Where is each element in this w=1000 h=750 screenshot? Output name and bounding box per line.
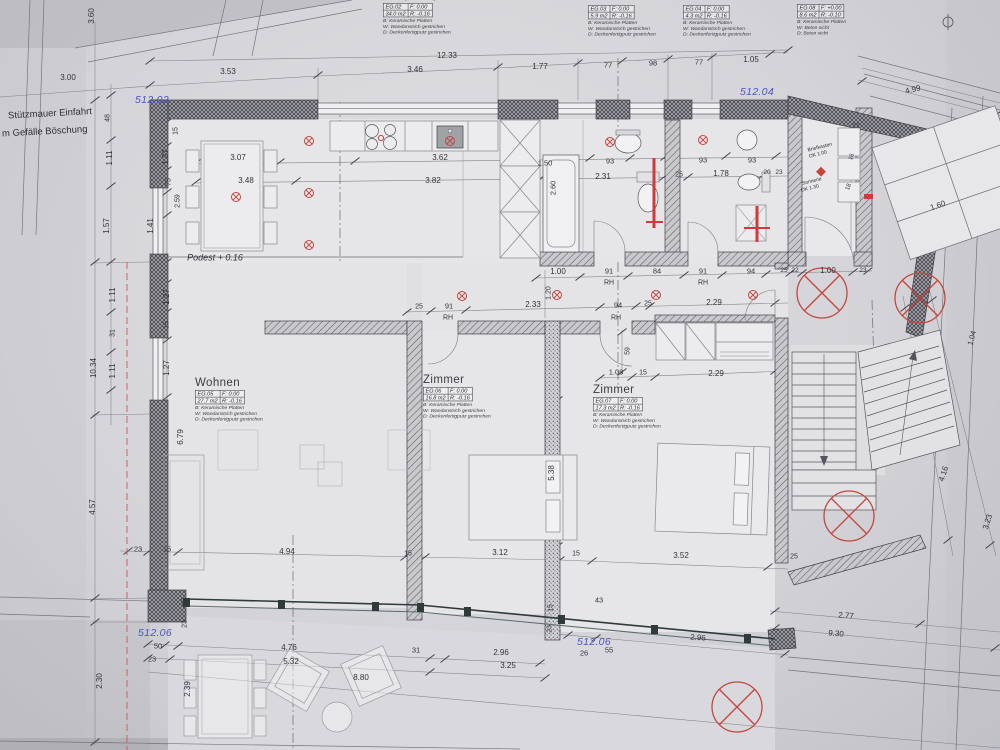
room-data-table: EG.08F: +0.00 8.6 m2R: -0.10 xyxy=(797,4,844,18)
dimension-label: 93 xyxy=(606,157,614,165)
dimension-label: 8.80 xyxy=(353,674,369,682)
dimension-label: 3.12 xyxy=(492,549,508,557)
dimension-label: 1.27 xyxy=(163,289,171,305)
dimension-label: 2.96 xyxy=(690,633,706,642)
dimension-label: 93 xyxy=(748,156,756,164)
dimension-label: 1.05 xyxy=(743,56,759,64)
info-box-eg08: EG.08F: +0.00 8.6 m2R: -0.10 B: Keramisc… xyxy=(797,3,876,55)
dimension-label: 15 xyxy=(548,604,555,612)
dimension-label: 3.48 xyxy=(238,177,254,185)
dimension-label: 2.59 xyxy=(175,194,182,208)
dimension-label: 15 xyxy=(404,551,412,558)
dimension-label: 5.38 xyxy=(548,465,556,481)
dimension-label: 77 xyxy=(604,61,612,69)
dimension-label: 25 xyxy=(415,304,423,311)
dimension-label: 3.52 xyxy=(673,552,689,560)
dimension-label: 91 xyxy=(699,267,707,275)
dimension-label: 1.57 xyxy=(103,218,111,234)
dimension-label: 77 xyxy=(695,58,703,66)
dimension-label: 4.94 xyxy=(279,548,295,556)
dimension-label: 25 xyxy=(675,172,683,179)
room-label-wohnen: Wohnen EG.05F: 0.00 27.7 m2R: -0.16 B: K… xyxy=(195,377,304,441)
room-title-kueche: Küche, Essen, Flur xyxy=(381,0,453,2)
dimension-label: 9.30 xyxy=(828,629,844,638)
dimension-label: 1.11 xyxy=(109,364,117,379)
dimension-label: 3.46 xyxy=(407,66,423,74)
dimension-label: 94 xyxy=(614,301,622,309)
dimension-label: RH xyxy=(443,315,453,322)
dimension-label: 2.30 xyxy=(96,673,104,689)
dimension-label: 15 xyxy=(572,551,580,558)
dimension-label: 23 xyxy=(148,655,156,663)
room-label-zimmer-1: Zimmer EG.06F: 0.00 16.8 m2R: -0.16 B: K… xyxy=(423,374,532,438)
dimension-label: 22 xyxy=(791,268,798,275)
dimension-label: 1.11 xyxy=(106,151,114,166)
dimension-label: 3.25 xyxy=(500,662,516,670)
dimension-label: 20 xyxy=(763,170,770,177)
dimension-label: 59 xyxy=(625,347,632,355)
dimension-label: 23 xyxy=(134,545,142,553)
dimension-label: 1.27 xyxy=(162,149,170,165)
dimension-label: 15 xyxy=(639,370,647,377)
room-data-table: EG.02F: 0.00 34.0 m2R: -0.16 xyxy=(383,3,432,17)
dimension-label: 23 xyxy=(547,625,554,633)
dimension-label: 15 xyxy=(173,127,180,135)
dimension-label: 2.77 xyxy=(838,611,854,620)
dimension-label: 94 xyxy=(747,267,755,275)
dimension-label: 48 xyxy=(105,114,112,122)
dimension-label: 93 xyxy=(699,156,707,164)
dimension-label: 31 xyxy=(412,646,420,654)
dimension-label: 6.79 xyxy=(177,429,185,445)
dimension-label: 98 xyxy=(649,59,657,67)
dimension-label: 23 xyxy=(775,170,782,177)
dimension-label: RH xyxy=(698,280,708,287)
dimension-label: 15 xyxy=(164,321,171,329)
dimension-label: 4.57 xyxy=(89,499,97,515)
dimension-label: 23 xyxy=(852,124,859,131)
info-box-eg03: EG.03F: 0.00 5.9 m2R: -0.16 B: Keramisch… xyxy=(588,4,697,56)
dimension-label: 26 xyxy=(580,649,588,657)
dimension-label: 23 xyxy=(182,620,189,628)
dimension-label: 1.08 xyxy=(609,368,624,376)
dimension-label: 91 xyxy=(605,267,613,275)
elevation-label: 512.02 xyxy=(135,95,169,106)
dimension-label: 2.29 xyxy=(706,299,722,307)
dimension-label: 2.39 xyxy=(184,681,192,697)
dimension-label: 3.07 xyxy=(230,154,246,162)
dimension-label: RH xyxy=(611,315,621,322)
dimension-label: 15 xyxy=(182,598,189,606)
dimension-label: 75 xyxy=(166,178,173,186)
info-box-eg02: Küche, Essen, Flur EG.02F: 0.00 34.0 m2R… xyxy=(383,2,492,54)
dimension-label: 1.78 xyxy=(713,170,729,178)
dimension-label: 5.32 xyxy=(283,658,299,666)
elevation-label: 512.06 xyxy=(138,628,172,639)
dimension-label: 1.27 xyxy=(163,360,171,376)
dimension-label: 2.33 xyxy=(525,301,541,309)
stairs xyxy=(792,330,960,510)
floorplan-page: Küche, Essen, Flur EG.02F: 0.00 34.0 m2R… xyxy=(0,0,1000,750)
info-box-eg04: EG.04F: 0.00 4.3 m2R: -0.16 B: Keramisch… xyxy=(683,4,792,56)
room-data-table: EG.05F: 0.00 27.7 m2R: -0.16 xyxy=(195,390,244,404)
dimension-label: 3.53 xyxy=(220,68,236,76)
elevation-label: 512.04 xyxy=(740,87,774,98)
dimension-label: 3.00 xyxy=(60,74,76,82)
dimension-label: 25 xyxy=(644,301,652,308)
dimension-label: 1.00 xyxy=(820,267,836,275)
elevation-label: 512.06 xyxy=(577,637,611,648)
room-data-table: EG.03F: 0.00 5.9 m2R: -0.16 xyxy=(588,5,634,19)
dimension-label: 10.34 xyxy=(90,358,98,378)
dimension-label: 84 xyxy=(653,267,661,275)
dimension-label: 91 xyxy=(445,302,453,310)
dimension-label: 43 xyxy=(595,596,603,604)
room-label-zimmer-2: Zimmer EG.07F: 0.00 17.3 m2R: -0.16 B: K… xyxy=(593,384,702,448)
dimension-label: 3.60 xyxy=(88,8,96,24)
dimension-label: RH xyxy=(604,280,614,287)
dimension-label: 4.76 xyxy=(281,644,297,652)
dimension-label: 1.77 xyxy=(532,63,548,71)
dimension-label: 2.31 xyxy=(595,173,611,181)
dimension-label: 1.20 xyxy=(546,286,553,300)
annotation-label: Podest + 0.16 xyxy=(187,254,243,263)
dimension-label: 1.41 xyxy=(147,218,155,234)
dimension-label: 1.00 xyxy=(550,268,566,276)
dimension-label: 25 xyxy=(780,268,787,275)
dimension-label: 50 xyxy=(154,642,162,650)
dimension-label: 31 xyxy=(110,329,117,337)
room-data-table: EG.04F: 0.00 4.3 m2R: -0.16 xyxy=(683,5,729,19)
dimension-label: 2.96 xyxy=(493,649,509,657)
room-data-table: EG.07F: 0.00 17.3 m2R: -0.16 xyxy=(593,397,642,411)
dimension-label: 1.50 xyxy=(538,159,553,167)
dimension-label: 2.29 xyxy=(708,370,724,378)
dimension-label: 23 xyxy=(859,268,866,275)
dimension-label: 2.60 xyxy=(549,181,557,196)
dimension-label: 25 xyxy=(790,554,798,561)
dimension-label: 3.82 xyxy=(425,177,441,185)
dimension-label: 3.62 xyxy=(432,154,448,162)
dimension-label: 15 xyxy=(163,545,171,553)
room-data-table: EG.06F: 0.00 16.8 m2R: -0.16 xyxy=(423,387,472,401)
dimension-label: 1.11 xyxy=(109,288,117,303)
